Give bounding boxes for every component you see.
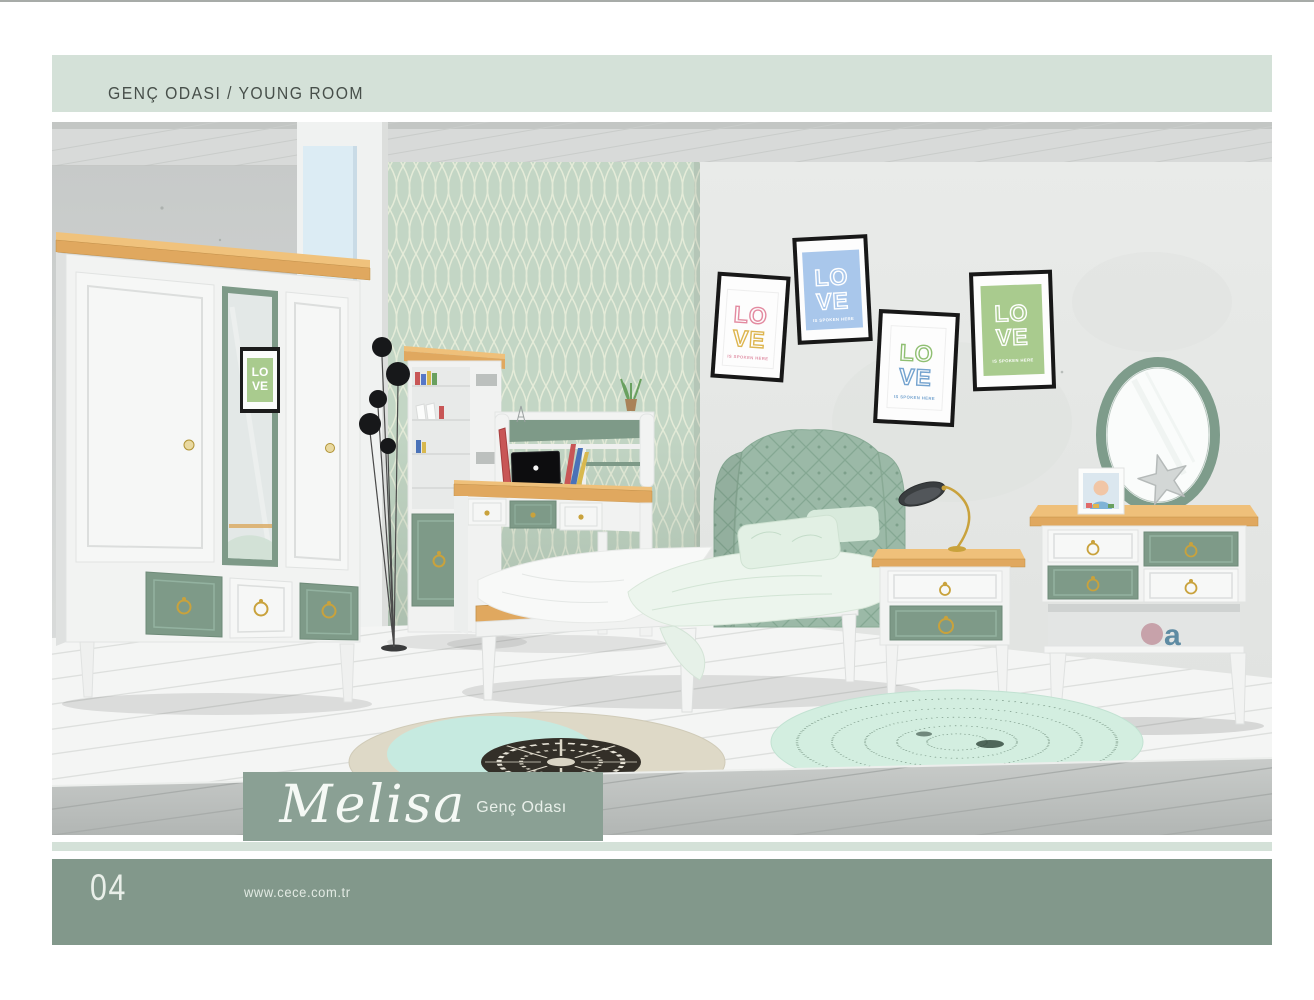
decor-ball [1141,623,1163,645]
website-url: www.cece.com.tr [244,885,351,900]
svg-text:LO: LO [252,365,269,379]
gold-knob [326,444,335,453]
gold-knob [184,440,194,450]
wardrobe-door-right [286,292,348,570]
photo-frame [1078,468,1124,514]
divider-strip [52,842,1272,851]
poster-blue: LO VE IS SPOKEN HERE [792,234,872,345]
page-header: GENÇ ODASI / YOUNG ROOM [52,55,1272,112]
svg-text:VE: VE [732,325,766,353]
svg-text:VE: VE [252,379,268,393]
ceiling [52,122,1272,168]
page-number: 04 [90,867,127,909]
room-photo: LO VE IS SPOKEN HERE LO VE IS SPOKEN HER… [52,122,1272,835]
brand-band: Melisa Genç Odası [243,772,603,841]
poster-green-blue: LO VE IS SPOKEN HERE [873,309,960,427]
svg-text:VE: VE [995,323,1029,350]
svg-text:VE: VE [816,287,850,315]
desk-drawers [468,499,602,530]
top-border-line [0,0,1314,2]
catalog-page: GENÇ ODASI / YOUNG ROOM [0,0,1314,1000]
wardrobe-mirror-door: LO VE [222,286,280,567]
poster-pink: LO VE IS SPOKEN HERE [710,272,790,383]
brand-title: Melisa [279,772,466,838]
room-scene: LO VE IS SPOKEN HERE LO VE IS SPOKEN HER… [52,122,1272,835]
svg-text:VE: VE [899,363,933,391]
svg-text:LO: LO [994,299,1029,326]
poster-green: LO VE IS SPOKEN HERE [969,270,1056,392]
page-footer: 04 www.cece.com.tr [52,859,1272,945]
brand-subtitle: Genç Odası [476,799,566,817]
page-title: GENÇ ODASI / YOUNG ROOM [108,83,364,104]
wardrobe-door-left [76,272,214,562]
